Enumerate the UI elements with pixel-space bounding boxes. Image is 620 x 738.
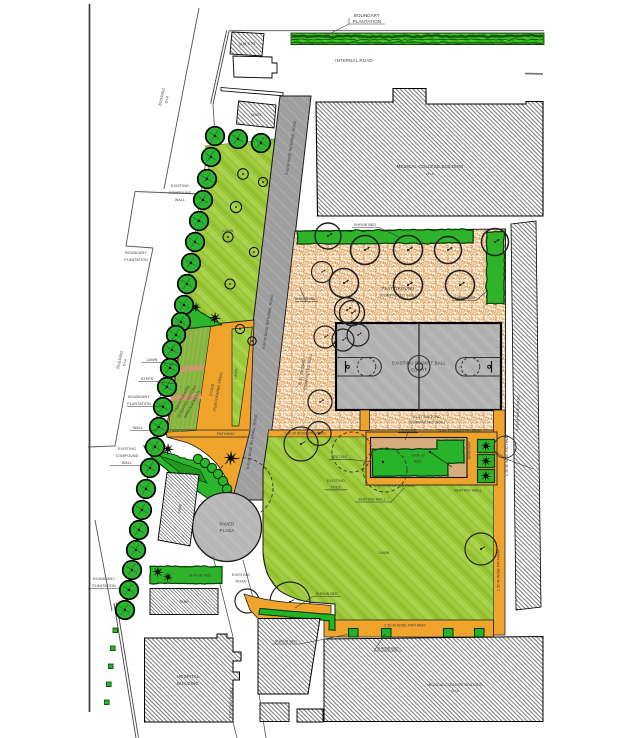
svg-text:1.20 M WIDE PATHWAY: 1.20 M WIDE PATHWAY [505, 433, 509, 476]
svg-text:PLAT GROUND: PLAT GROUND [413, 415, 441, 419]
svg-text:EXISTING: EXISTING [118, 447, 136, 451]
svg-text:WALL: WALL [122, 461, 132, 465]
svg-text:SHRUB BED: SHRUB BED [316, 592, 339, 596]
svg-text:PLANTATION: PLANTATION [124, 258, 148, 262]
svg-text:LAWN: LAWN [379, 551, 390, 555]
svg-text:STEPS: STEPS [141, 377, 154, 381]
svg-text:EXISTING: EXISTING [232, 573, 250, 577]
svg-text:HOSPITAL: HOSPITAL [177, 674, 200, 679]
svg-text:TREE: TREE [331, 486, 342, 490]
svg-text:COMPOUND: COMPOUND [169, 191, 192, 195]
svg-text:SHRUB BED: SHRUB BED [377, 647, 400, 651]
svg-text:1.50 M WIDE PATHWAY: 1.50 M WIDE PATHWAY [439, 429, 482, 433]
svg-text:PLAT GROUND: PLAT GROUND [382, 286, 415, 291]
svg-text:EXISTING: EXISTING [171, 184, 189, 188]
svg-text:LAWN: LAWN [223, 229, 234, 233]
svg-text:BOUNDARY: BOUNDARY [93, 577, 115, 581]
svg-text:BOUNDARY: BOUNDARY [354, 13, 380, 18]
svg-text:WALL: WALL [133, 426, 143, 430]
svg-text:EXISTING BASKET BALL: EXISTING BASKET BALL [392, 361, 446, 366]
svg-text:SHRUB BED: SHRUB BED [453, 296, 476, 300]
svg-text:PATHWAY: PATHWAY [217, 432, 235, 436]
svg-text:BOUNDARY: BOUNDARY [128, 395, 150, 399]
svg-text:ROAD: ROAD [235, 580, 246, 584]
svg-text:INTERNAL ROAD: INTERNAL ROAD [335, 58, 372, 63]
svg-text:PARKWAY: PARKWAY [468, 440, 472, 459]
svg-text:MEDICAL COLLEGE BUILDING: MEDICAL COLLEGE BUILDING [427, 683, 483, 687]
svg-text:BED: BED [414, 460, 422, 464]
svg-text:BUILDING: BUILDING [177, 681, 199, 686]
svg-text:PAVED: PAVED [220, 522, 235, 527]
svg-text:EXISTING: EXISTING [327, 479, 345, 483]
svg-text:KERBING: KERBING [399, 429, 416, 433]
svg-text:1.50 M WIDE PATHWAY: 1.50 M WIDE PATHWAY [284, 432, 327, 436]
svg-text:WALL: WALL [175, 198, 185, 202]
svg-text:COURT: COURT [411, 368, 427, 373]
svg-text:LAWN: LAWN [147, 358, 158, 362]
svg-text:PLANTATION: PLANTATION [92, 584, 116, 588]
svg-text:COMPOUND: COMPOUND [116, 454, 139, 458]
svg-text:SEATING WALL: SEATING WALL [454, 489, 482, 493]
svg-text:PLANTATION: PLANTATION [353, 19, 381, 24]
svg-text:SEATING: SEATING [331, 455, 348, 459]
svg-text:PLANTATION: PLANTATION [127, 402, 151, 406]
svg-text:(COMPACTED SOIL): (COMPACTED SOIL) [380, 294, 417, 298]
svg-text:SHRUB: SHRUB [411, 454, 425, 458]
svg-text:G+4: G+4 [426, 172, 433, 176]
svg-text:1.50 M WIDE PATHWAY: 1.50 M WIDE PATHWAY [497, 548, 501, 591]
svg-text:TANK: TANK [179, 600, 189, 604]
svg-text:1.50 M WIDE PATHWAY: 1.50 M WIDE PATHWAY [384, 624, 427, 628]
svg-text:G+4: G+4 [451, 689, 458, 693]
svg-text:SHRUB BED: SHRUB BED [189, 574, 212, 578]
svg-text:MEDICAL COLLEGE BUILDING: MEDICAL COLLEGE BUILDING [397, 164, 464, 169]
svg-text:1.20 M WIDE PATHWAY: 1.20 M WIDE PATHWAY [374, 484, 417, 488]
svg-text:SHRUB BED: SHRUB BED [354, 223, 377, 227]
svg-text:PLAZA: PLAZA [220, 528, 235, 533]
svg-text:(COMPACTED SOIL): (COMPACTED SOIL) [409, 421, 446, 425]
svg-text:SHRUB BED: SHRUB BED [295, 297, 318, 301]
svg-text:BOUNDARY: BOUNDARY [125, 251, 147, 255]
svg-text:SEATING WALL: SEATING WALL [358, 498, 386, 502]
svg-text:SHRUB BED: SHRUB BED [275, 640, 298, 644]
